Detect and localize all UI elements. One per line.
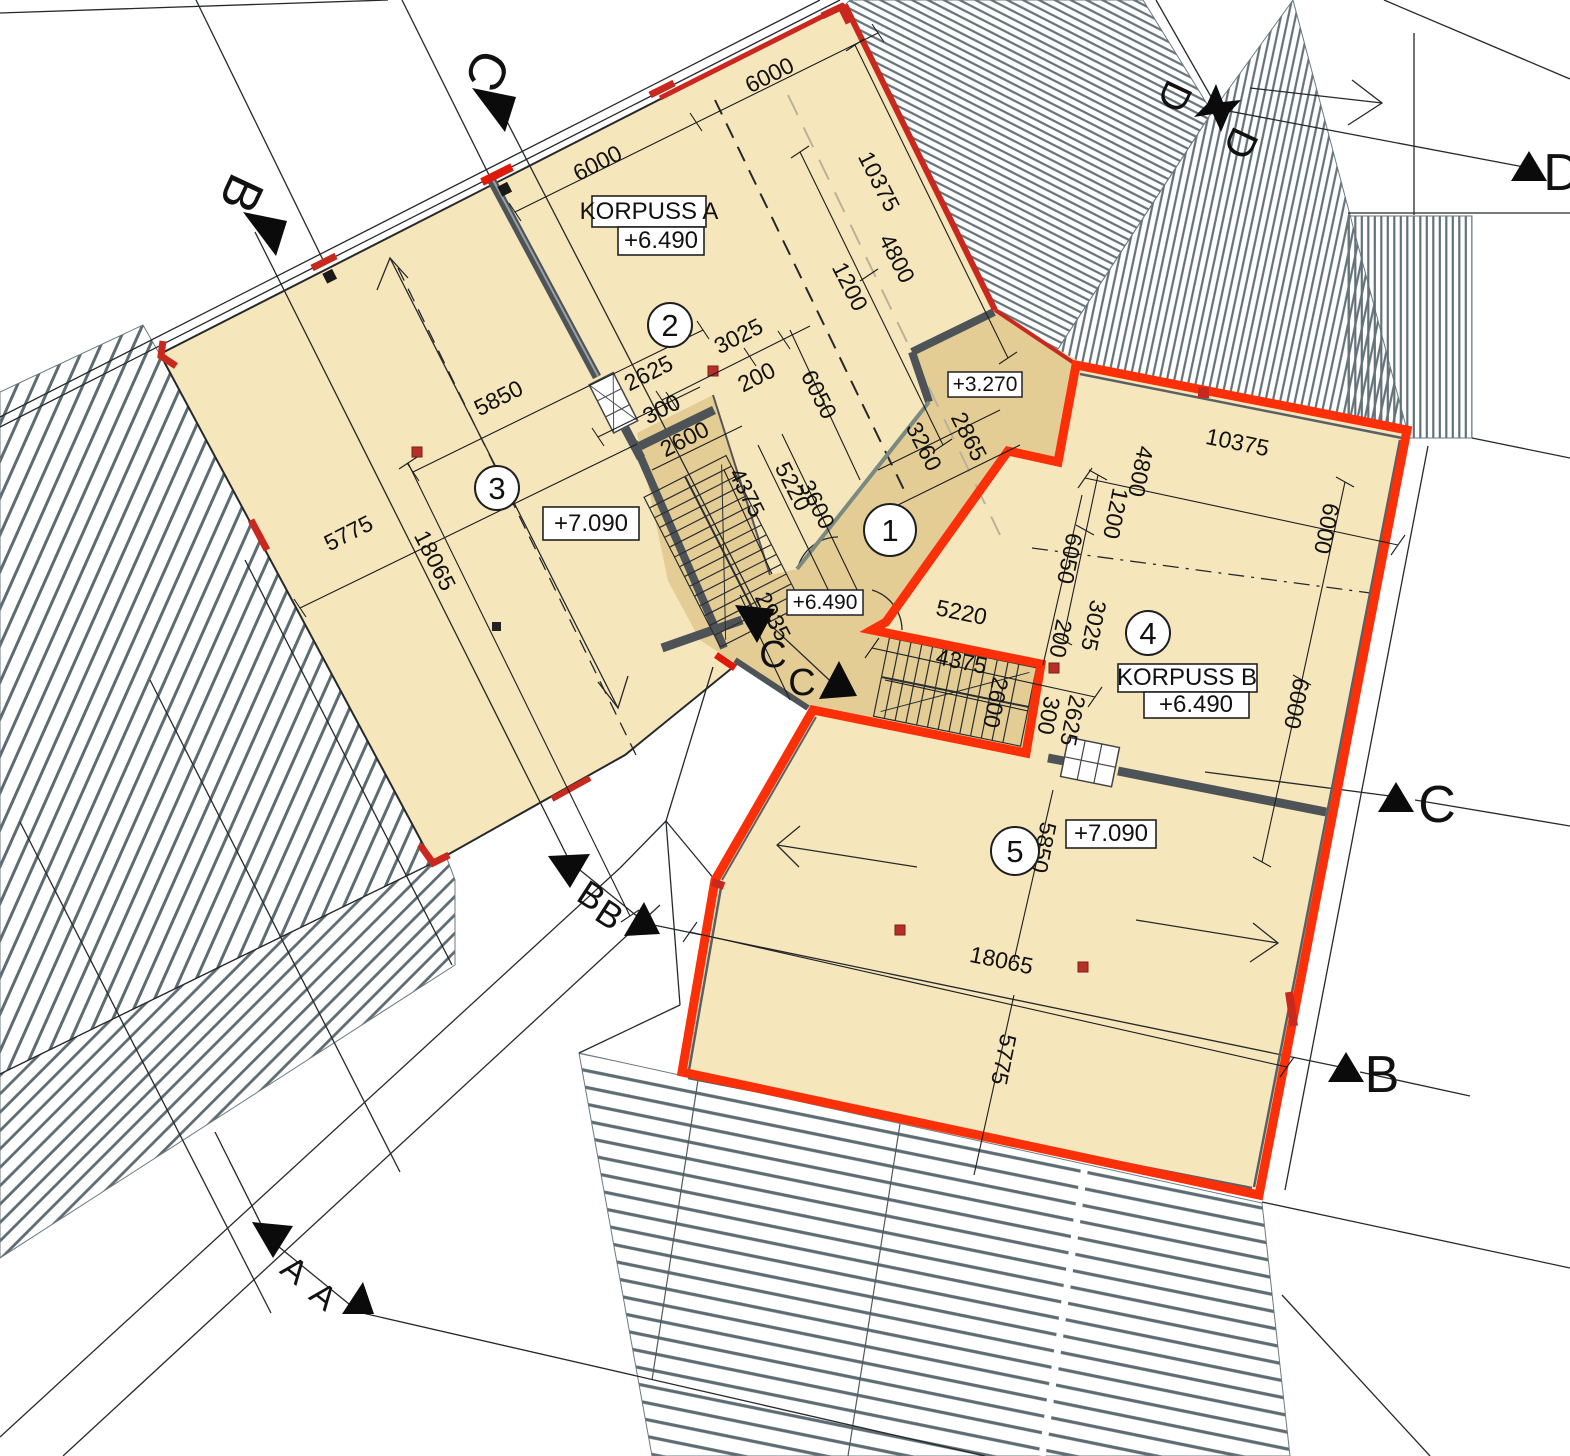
svg-text:+6.490: +6.490 (624, 227, 698, 254)
svg-text:D: D (1543, 144, 1570, 202)
svg-text:4: 4 (1139, 616, 1156, 651)
svg-text:C: C (759, 634, 786, 676)
svg-text:C: C (1418, 776, 1456, 834)
svg-text:2: 2 (661, 308, 678, 343)
svg-text:5: 5 (1006, 834, 1023, 869)
svg-text:3: 3 (488, 471, 505, 506)
svg-text:+3.270: +3.270 (953, 373, 1018, 396)
svg-text:+7.090: +7.090 (554, 510, 628, 537)
svg-text:+6.490: +6.490 (793, 591, 858, 614)
svg-text:KORPUSS A: KORPUSS A (580, 198, 719, 225)
svg-text:B: B (1365, 1046, 1400, 1104)
svg-text:1: 1 (881, 513, 898, 548)
svg-text:KORPUSS B: KORPUSS B (1117, 664, 1257, 691)
svg-text:+7.090: +7.090 (1074, 820, 1148, 847)
svg-text:+6.490: +6.490 (1159, 691, 1233, 718)
svg-text:C: C (788, 662, 815, 704)
